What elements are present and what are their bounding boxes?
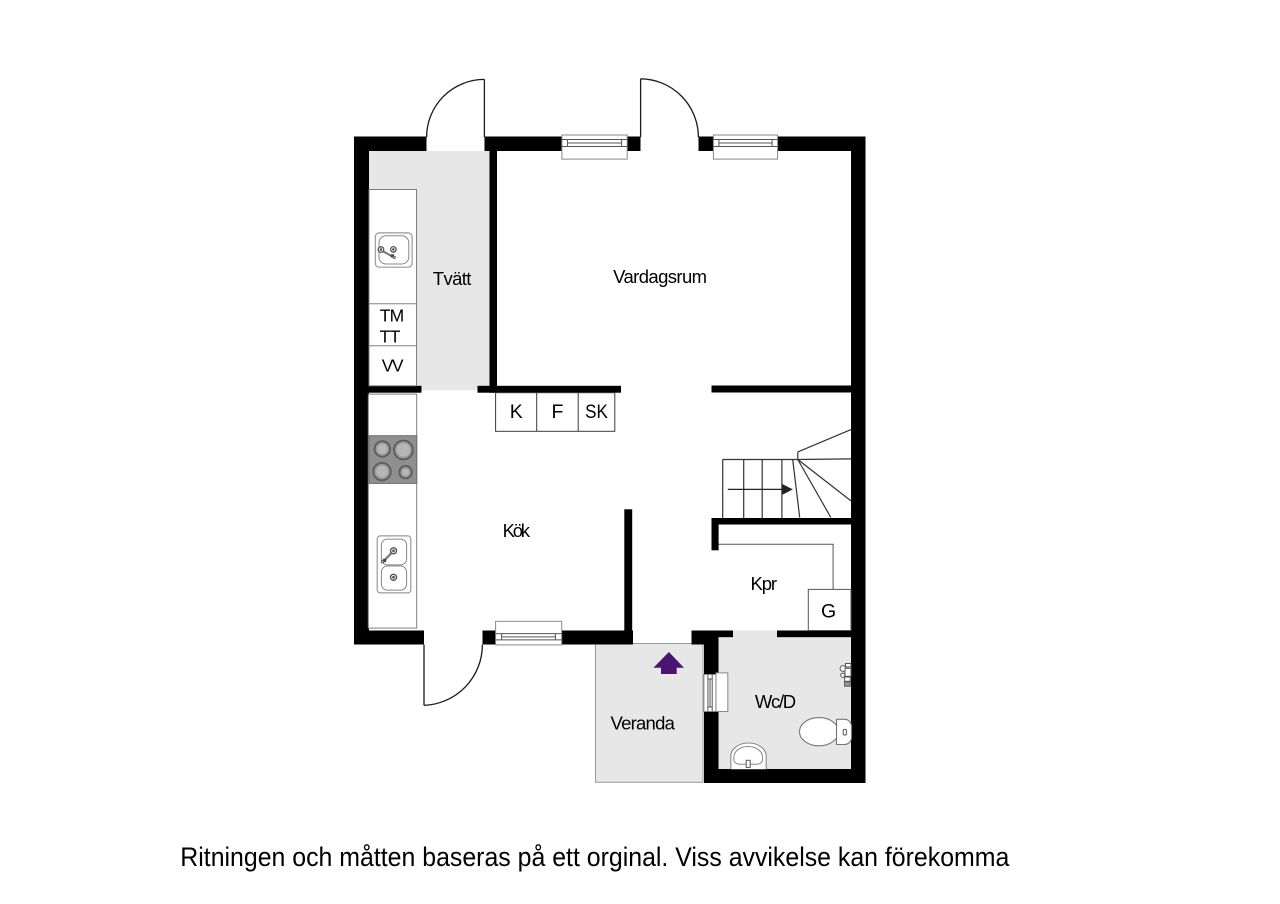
svg-text:TM: TM xyxy=(380,306,404,326)
svg-text:Kpr: Kpr xyxy=(751,573,778,594)
svg-text:Tvätt: Tvätt xyxy=(433,268,472,289)
svg-text:TT: TT xyxy=(380,327,401,347)
svg-text:K: K xyxy=(510,401,523,423)
svg-text:Vardagsrum: Vardagsrum xyxy=(613,266,707,287)
svg-text:Veranda: Veranda xyxy=(611,712,676,733)
svg-text:Ritningen och måtten baseras p: Ritningen och måtten baseras på ett orgi… xyxy=(180,841,1010,872)
svg-text:VV: VV xyxy=(382,356,404,376)
svg-text:G: G xyxy=(821,601,836,623)
svg-text:Kök: Kök xyxy=(503,520,531,541)
svg-text:F: F xyxy=(552,401,564,423)
svg-text:SK: SK xyxy=(585,401,608,423)
svg-text:Wc/D: Wc/D xyxy=(755,691,796,712)
